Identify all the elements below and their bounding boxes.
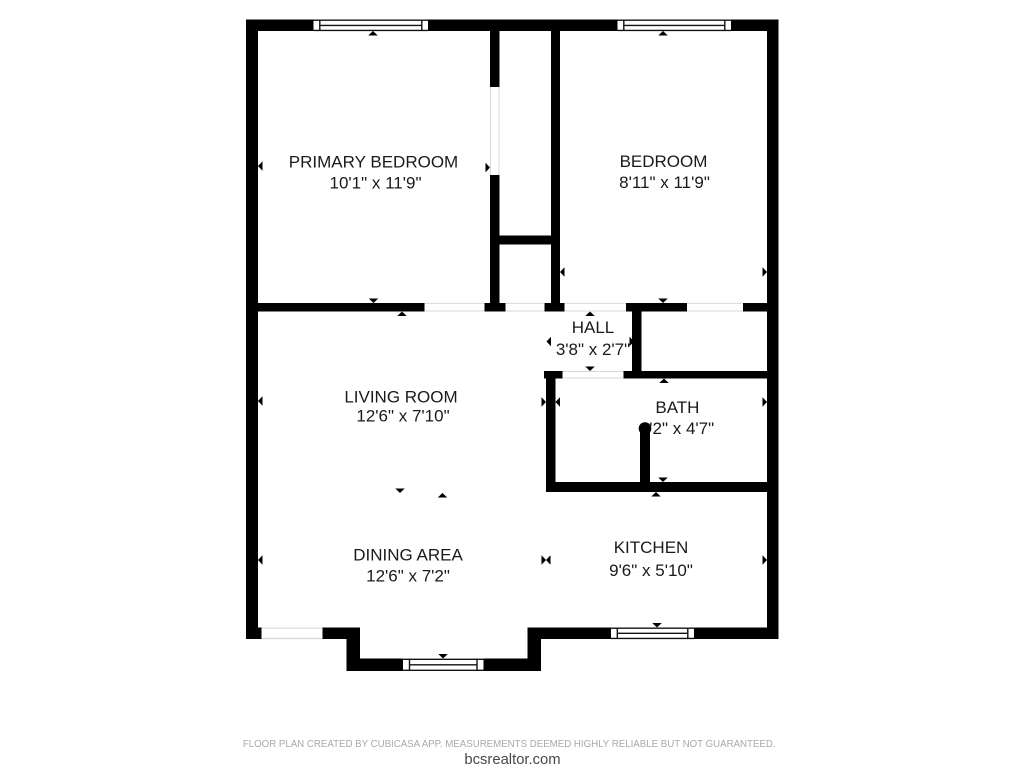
svg-text:9'6" x 5'10": 9'6" x 5'10" [609,561,693,580]
svg-text:LIVING ROOM: LIVING ROOM [344,388,457,407]
svg-text:10'1" x 11'9": 10'1" x 11'9" [330,173,422,192]
svg-text:12'6" x 7'2": 12'6" x 7'2" [366,566,450,585]
svg-text:BEDROOM: BEDROOM [620,152,708,171]
svg-text:FLOOR PLAN CREATED BY CUBICASA: FLOOR PLAN CREATED BY CUBICASA APP. MEAS… [243,739,776,750]
svg-text:DINING AREA: DINING AREA [353,545,463,564]
svg-text:PRIMARY BEDROOM: PRIMARY BEDROOM [289,152,458,171]
svg-text:BATH: BATH [655,398,699,417]
svg-text:12'6" x 7'10": 12'6" x 7'10" [356,407,449,426]
svg-text:HALL: HALL [572,318,615,337]
svg-text:3'8" x 2'7": 3'8" x 2'7" [556,340,630,359]
svg-text:KITCHEN: KITCHEN [614,538,689,557]
svg-text:bcsrealtor.com: bcsrealtor.com [464,752,560,768]
svg-text:8'11" x 11'9": 8'11" x 11'9" [619,173,710,192]
